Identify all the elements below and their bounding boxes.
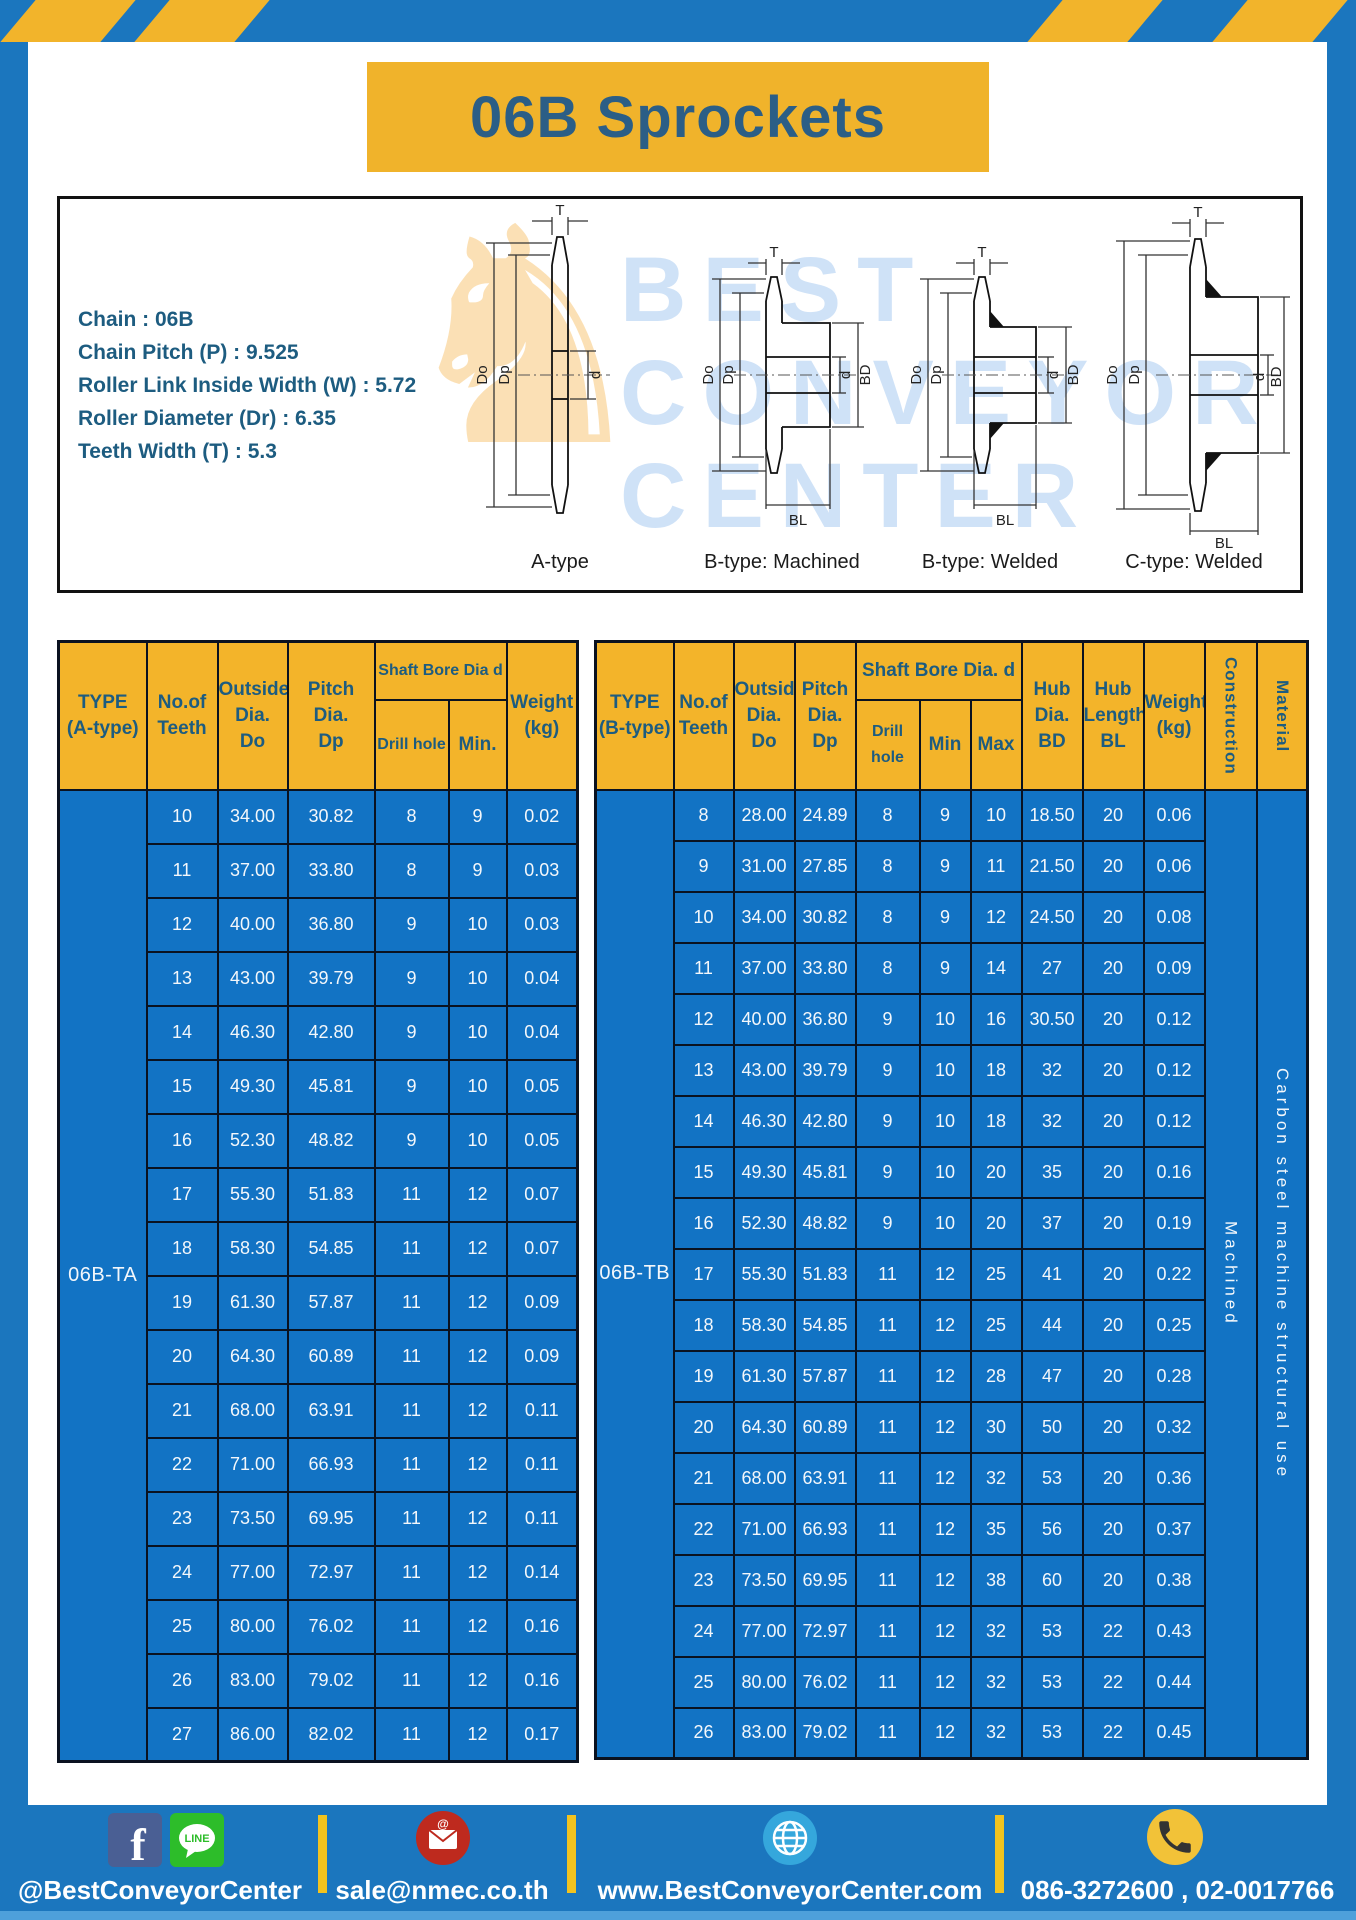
- diagram-panel: ♞ BEST CONVEYOR CENTER Chain : 06B Chain…: [57, 196, 1303, 593]
- table-cell: 20: [1083, 1300, 1144, 1351]
- table-cell: 9: [375, 1060, 449, 1114]
- table-cell: 11: [856, 1657, 920, 1708]
- b-type-machined-diagram: T Do Dp d BD BL: [682, 205, 882, 550]
- table-cell: 0.02: [507, 790, 578, 844]
- table-cell: 30.50: [1022, 994, 1083, 1045]
- table-cell: 52.30: [218, 1114, 288, 1168]
- table-cell: 9: [449, 844, 507, 898]
- table-cell: 10: [920, 1147, 971, 1198]
- table-cell: 46.30: [734, 1096, 795, 1147]
- table-cell: 0.14: [507, 1546, 578, 1600]
- dim-label-do: Do: [474, 365, 491, 384]
- spec-line: Roller Diameter (Dr) : 6.35: [78, 402, 416, 435]
- title-banner: 06B Sprockets: [367, 62, 989, 172]
- table-cell: 10: [449, 1114, 507, 1168]
- table-cell: 9: [856, 1096, 920, 1147]
- table-cell: 11: [856, 1300, 920, 1351]
- a-type-table-header: TYPE (A-type) No.of Teeth Outside Dia. D…: [59, 642, 578, 790]
- table-cell: 76.02: [288, 1600, 375, 1654]
- dim-label-do: Do: [1104, 365, 1121, 384]
- table-cell: 9: [856, 1198, 920, 1249]
- table-cell: 20: [1083, 1402, 1144, 1453]
- table-b-row: 1446.3042.809101832200.12: [596, 1096, 1308, 1147]
- table-cell: 21.50: [1022, 841, 1083, 892]
- table-cell: 0.07: [507, 1168, 578, 1222]
- table-cell: 72.97: [795, 1606, 856, 1657]
- table-cell: 60.89: [288, 1330, 375, 1384]
- table-b-body: 06B-TB828.0024.89891018.50200.06Machined…: [596, 790, 1308, 1759]
- table-cell: 53: [1022, 1657, 1083, 1708]
- header-construction: Construction: [1205, 642, 1257, 790]
- table-cell: 12: [449, 1600, 507, 1654]
- footer-separator: [567, 1815, 576, 1893]
- table-cell: 20: [1083, 1096, 1144, 1147]
- table-cell: 9: [856, 1147, 920, 1198]
- table-cell: 11: [971, 841, 1022, 892]
- table-cell: 9: [920, 892, 971, 943]
- table-b-row: 2580.0076.0211123253220.44: [596, 1657, 1308, 1708]
- header-min: Min: [920, 700, 971, 790]
- table-cell: 36.80: [795, 994, 856, 1045]
- table-cell: 43.00: [218, 952, 288, 1006]
- email-icon[interactable]: @: [415, 1810, 471, 1871]
- table-cell: 18: [147, 1222, 218, 1276]
- table-cell: 8: [856, 892, 920, 943]
- table-cell: 48.82: [795, 1198, 856, 1249]
- table-cell: 32: [971, 1708, 1022, 1759]
- website-text[interactable]: www.BestConveyorCenter.com: [585, 1875, 995, 1906]
- table-cell: 18: [971, 1045, 1022, 1096]
- table-cell: 53: [1022, 1708, 1083, 1759]
- a-type-table: TYPE (A-type) No.of Teeth Outside Dia. D…: [57, 640, 579, 1763]
- table-cell: 32: [971, 1657, 1022, 1708]
- table-cell: 71.00: [218, 1438, 288, 1492]
- table-cell: 33.80: [795, 943, 856, 994]
- table-cell: 57.87: [795, 1351, 856, 1402]
- table-cell: 55.30: [218, 1168, 288, 1222]
- table-cell: 58.30: [218, 1222, 288, 1276]
- header-hub-length: Hub Length BL: [1083, 642, 1144, 790]
- table-cell: 10: [449, 898, 507, 952]
- table-cell: 0.06: [1144, 841, 1205, 892]
- table-cell: 63.91: [288, 1384, 375, 1438]
- stripe-decor: [129, 0, 274, 42]
- footer-bottom-strip: [0, 1911, 1356, 1920]
- table-cell: 48.82: [288, 1114, 375, 1168]
- phone-icon[interactable]: [1146, 1808, 1204, 1871]
- table-cell: 9: [375, 1114, 449, 1168]
- header-type: TYPE (B-type): [596, 642, 674, 790]
- c-type-welded-diagram: T Do Dp d BD BL: [1094, 205, 1294, 550]
- table-cell: 0.28: [1144, 1351, 1205, 1402]
- diagram-caption-b-welded: B-type: Welded: [885, 551, 1095, 574]
- table-cell: 14: [971, 943, 1022, 994]
- header-weight: Weight (kg): [1144, 642, 1205, 790]
- facebook-icon[interactable]: f: [108, 1813, 162, 1872]
- table-cell: 32: [971, 1453, 1022, 1504]
- header-teeth: No.of Teeth: [147, 642, 218, 790]
- table-cell: 0.32: [1144, 1402, 1205, 1453]
- table-cell: 0.16: [507, 1600, 578, 1654]
- header-teeth: No.of Teeth: [674, 642, 734, 790]
- table-b-row: 1652.3048.829102037200.19: [596, 1198, 1308, 1249]
- table-cell: 0.09: [1144, 943, 1205, 994]
- page-title: 06B Sprockets: [470, 84, 886, 151]
- table-cell: 10: [674, 892, 734, 943]
- table-cell: 52.30: [734, 1198, 795, 1249]
- table-cell: 0.37: [1144, 1504, 1205, 1555]
- dim-label-d: d: [837, 371, 854, 379]
- table-cell: 41: [1022, 1249, 1083, 1300]
- b-type-table: TYPE (B-type) No.of Teeth Outside Dia. D…: [594, 640, 1309, 1760]
- table-cell: 71.00: [734, 1504, 795, 1555]
- table-cell: 12: [674, 994, 734, 1045]
- dim-label-d: d: [587, 371, 604, 379]
- table-cell: 20: [1083, 790, 1144, 841]
- table-cell: 10: [920, 1045, 971, 1096]
- table-cell: 19: [674, 1351, 734, 1402]
- table-cell: 24: [674, 1606, 734, 1657]
- dim-label-dp: Dp: [720, 365, 737, 384]
- table-cell: 25: [147, 1600, 218, 1654]
- table-cell: 77.00: [734, 1606, 795, 1657]
- table-cell: 50: [1022, 1402, 1083, 1453]
- table-cell: 0.11: [507, 1384, 578, 1438]
- b-type-table-header: TYPE (B-type) No.of Teeth Outside Dia. D…: [596, 642, 1308, 790]
- table-cell: 22: [1083, 1708, 1144, 1759]
- line-icon[interactable]: LINE: [170, 1813, 224, 1872]
- table-cell: 10: [147, 790, 218, 844]
- table-cell: 11: [375, 1330, 449, 1384]
- table-cell: 21: [674, 1453, 734, 1504]
- header-hub-dia: Hub Dia. BD: [1022, 642, 1083, 790]
- table-cell: 37.00: [218, 844, 288, 898]
- type-label-cell: 06B-TB: [596, 790, 674, 1759]
- dim-label-do: Do: [908, 365, 925, 384]
- table-cell: 10: [971, 790, 1022, 841]
- table-cell: 10: [449, 952, 507, 1006]
- table-cell: 80.00: [218, 1600, 288, 1654]
- table-cell: 23: [674, 1555, 734, 1606]
- table-cell: 11: [375, 1708, 449, 1762]
- spec-line: Chain Pitch (P) : 9.525: [78, 336, 416, 369]
- table-cell: 23: [147, 1492, 218, 1546]
- table-cell: 16: [971, 994, 1022, 1045]
- table-cell: 12: [449, 1168, 507, 1222]
- table-cell: 57.87: [288, 1276, 375, 1330]
- table-cell: 9: [375, 1006, 449, 1060]
- table-cell: 45.81: [288, 1060, 375, 1114]
- table-cell: 12: [449, 1546, 507, 1600]
- spec-line: Roller Link Inside Width (W) : 5.72: [78, 369, 416, 402]
- table-cell: 10: [920, 1198, 971, 1249]
- table-cell: 10: [449, 1006, 507, 1060]
- table-cell: 12: [449, 1222, 507, 1276]
- table-cell: 20: [1083, 1198, 1144, 1249]
- table-cell: 28.00: [734, 790, 795, 841]
- table-cell: 68.00: [218, 1384, 288, 1438]
- diagram-caption-b-machined: B-type: Machined: [677, 551, 887, 574]
- table-cell: 86.00: [218, 1708, 288, 1762]
- table-cell: 9: [920, 943, 971, 994]
- table-cell: 64.30: [218, 1330, 288, 1384]
- table-cell: 40.00: [734, 994, 795, 1045]
- table-cell: 10: [920, 1096, 971, 1147]
- table-cell: 20: [1083, 1045, 1144, 1096]
- table-cell: 49.30: [218, 1060, 288, 1114]
- left-border: [0, 0, 28, 1920]
- table-b-row: 06B-TB828.0024.89891018.50200.06Machined…: [596, 790, 1308, 841]
- table-cell: 0.07: [507, 1222, 578, 1276]
- table-cell: 12: [920, 1351, 971, 1402]
- table-cell: 12: [449, 1384, 507, 1438]
- table-cell: 12: [920, 1504, 971, 1555]
- table-b-row: 2373.5069.9511123860200.38: [596, 1555, 1308, 1606]
- table-cell: 39.79: [795, 1045, 856, 1096]
- header-type: TYPE (A-type): [59, 642, 147, 790]
- table-b-row: 1240.0036.809101630.50200.12: [596, 994, 1308, 1045]
- table-cell: 64.30: [734, 1402, 795, 1453]
- table-cell: 31.00: [734, 841, 795, 892]
- table-cell: 25: [674, 1657, 734, 1708]
- table-cell: 55.30: [734, 1249, 795, 1300]
- table-b-row: 2271.0066.9311123556200.37: [596, 1504, 1308, 1555]
- table-cell: 53: [1022, 1453, 1083, 1504]
- header-max: Max: [971, 700, 1022, 790]
- table-cell: 0.08: [1144, 892, 1205, 943]
- table-cell: 20: [674, 1402, 734, 1453]
- social-handle-text[interactable]: @BestConveyorCenter: [10, 1875, 310, 1906]
- table-cell: 37: [1022, 1198, 1083, 1249]
- table-cell: 20: [1083, 1351, 1144, 1402]
- table-cell: 0.12: [1144, 1096, 1205, 1147]
- spec-line: Chain : 06B: [78, 303, 416, 336]
- table-cell: 42.80: [795, 1096, 856, 1147]
- table-a-row: 06B-TA1034.0030.82890.02: [59, 790, 578, 844]
- table-cell: 16: [147, 1114, 218, 1168]
- table-cell: 13: [674, 1045, 734, 1096]
- table-cell: 15: [147, 1060, 218, 1114]
- header-pitch-dia: Pitch Dia. Dp: [795, 642, 856, 790]
- table-cell: 18.50: [1022, 790, 1083, 841]
- table-cell: 0.17: [507, 1708, 578, 1762]
- table-cell: 66.93: [795, 1504, 856, 1555]
- table-cell: 11: [856, 1708, 920, 1759]
- table-cell: 17: [674, 1249, 734, 1300]
- stripe-decor: [0, 0, 141, 42]
- table-cell: 0.12: [1144, 994, 1205, 1045]
- table-cell: 79.02: [288, 1654, 375, 1708]
- table-b-row: 1343.0039.799101832200.12: [596, 1045, 1308, 1096]
- table-cell: 8: [856, 943, 920, 994]
- table-cell: 44: [1022, 1300, 1083, 1351]
- header-drill-hole: Drill hole: [375, 700, 449, 790]
- table-cell: 20: [1083, 1453, 1144, 1504]
- table-cell: 0.11: [507, 1438, 578, 1492]
- table-cell: 51.83: [288, 1168, 375, 1222]
- table-cell: 11: [856, 1504, 920, 1555]
- dim-label-bl: BL: [1215, 535, 1233, 550]
- table-cell: 68.00: [734, 1453, 795, 1504]
- table-cell: 35: [971, 1504, 1022, 1555]
- table-cell: 11: [375, 1222, 449, 1276]
- table-cell: 12: [920, 1402, 971, 1453]
- table-cell: 11: [674, 943, 734, 994]
- table-cell: 0.04: [507, 952, 578, 1006]
- table-cell: 37.00: [734, 943, 795, 994]
- table-cell: 25: [971, 1300, 1022, 1351]
- table-cell: 14: [147, 1006, 218, 1060]
- b-type-welded-diagram: T Do Dp d BD BL: [890, 205, 1090, 550]
- table-b-row: 1755.3051.8311122541200.22: [596, 1249, 1308, 1300]
- table-cell: 22: [1083, 1606, 1144, 1657]
- dim-label-do: Do: [700, 365, 717, 384]
- table-cell: 35: [1022, 1147, 1083, 1198]
- table-b-row: 1137.0033.80891427200.09: [596, 943, 1308, 994]
- dim-label-bd: BD: [857, 364, 874, 385]
- table-b-row: 1034.0030.82891224.50200.08: [596, 892, 1308, 943]
- table-cell: 24.89: [795, 790, 856, 841]
- table-cell: 69.95: [288, 1492, 375, 1546]
- table-cell: 33.80: [288, 844, 375, 898]
- table-cell: 11: [375, 1492, 449, 1546]
- table-cell: 0.38: [1144, 1555, 1205, 1606]
- table-b-row: 1549.3045.819102035200.16: [596, 1147, 1308, 1198]
- table-cell: 10: [449, 1060, 507, 1114]
- table-cell: 66.93: [288, 1438, 375, 1492]
- table-cell: 0.12: [1144, 1045, 1205, 1096]
- table-cell: 12: [449, 1276, 507, 1330]
- globe-icon[interactable]: [762, 1810, 818, 1871]
- table-cell: 38: [971, 1555, 1022, 1606]
- table-cell: 12: [449, 1708, 507, 1762]
- email-text[interactable]: sale@nmec.co.th: [322, 1875, 562, 1906]
- a-type-diagram: T Do Dp d: [460, 205, 660, 550]
- header-drill-hole: Drill hole: [856, 700, 920, 790]
- table-cell: 8: [856, 790, 920, 841]
- table-cell: 12: [449, 1654, 507, 1708]
- table-cell: 0.45: [1144, 1708, 1205, 1759]
- dim-label-dp: Dp: [496, 365, 513, 384]
- table-cell: 11: [375, 1168, 449, 1222]
- dim-label-dp: Dp: [1126, 365, 1143, 384]
- table-b-row: 1858.3054.8511122544200.25: [596, 1300, 1308, 1351]
- table-cell: 12: [920, 1657, 971, 1708]
- table-cell: 0.36: [1144, 1453, 1205, 1504]
- table-cell: 40.00: [218, 898, 288, 952]
- table-cell: 22: [674, 1504, 734, 1555]
- phone-text[interactable]: 086-3272600 , 02-0017766: [1005, 1875, 1350, 1906]
- table-cell: 0.43: [1144, 1606, 1205, 1657]
- table-cell: 12: [971, 892, 1022, 943]
- page: 06B Sprockets ♞ BEST CONVEYOR CENTER Cha…: [0, 0, 1356, 1920]
- table-cell: 26: [147, 1654, 218, 1708]
- construction-value-cell: Machined: [1205, 790, 1257, 1759]
- table-cell: 9: [375, 898, 449, 952]
- type-label-cell: 06B-TA: [59, 790, 147, 1762]
- right-border: [1327, 0, 1356, 1920]
- table-cell: 61.30: [218, 1276, 288, 1330]
- chain-specs: Chain : 06B Chain Pitch (P) : 9.525 Roll…: [78, 303, 416, 468]
- header-outside-dia: Outside Dia. Do: [218, 642, 288, 790]
- table-cell: 22: [1083, 1657, 1144, 1708]
- table-cell: 76.02: [795, 1657, 856, 1708]
- header-outside-dia: Outside Dia. Do: [734, 642, 795, 790]
- header-shaft-bore: Shaft Bore Dia. d: [856, 642, 1022, 700]
- table-cell: 17: [147, 1168, 218, 1222]
- table-cell: 12: [920, 1249, 971, 1300]
- table-cell: 11: [147, 844, 218, 898]
- table-cell: 36.80: [288, 898, 375, 952]
- table-cell: 79.02: [795, 1708, 856, 1759]
- diagram-caption-c-welded: C-type: Welded: [1089, 551, 1299, 574]
- footer-separator: [995, 1815, 1004, 1893]
- table-cell: 30.82: [288, 790, 375, 844]
- table-cell: 9: [674, 841, 734, 892]
- table-cell: 0.03: [507, 898, 578, 952]
- table-cell: 8: [375, 790, 449, 844]
- table-cell: 0.44: [1144, 1657, 1205, 1708]
- table-cell: 32: [1022, 1045, 1083, 1096]
- table-cell: 69.95: [795, 1555, 856, 1606]
- table-cell: 73.50: [734, 1555, 795, 1606]
- table-a-body: 06B-TA1034.0030.82890.021137.0033.80890.…: [59, 790, 578, 1762]
- table-cell: 32: [971, 1606, 1022, 1657]
- table-b-row: 2064.3060.8911123050200.32: [596, 1402, 1308, 1453]
- table-cell: 54.85: [795, 1300, 856, 1351]
- table-cell: 9: [920, 841, 971, 892]
- table-cell: 32: [1022, 1096, 1083, 1147]
- table-cell: 30: [971, 1402, 1022, 1453]
- table-cell: 20: [971, 1198, 1022, 1249]
- table-cell: 0.05: [507, 1060, 578, 1114]
- table-cell: 0.25: [1144, 1300, 1205, 1351]
- svg-text:@: @: [437, 1817, 449, 1831]
- table-cell: 24.50: [1022, 892, 1083, 943]
- table-cell: 20: [1083, 1555, 1144, 1606]
- table-cell: 0.05: [507, 1114, 578, 1168]
- table-cell: 8: [856, 841, 920, 892]
- table-cell: 73.50: [218, 1492, 288, 1546]
- table-cell: 22: [147, 1438, 218, 1492]
- svg-text:f: f: [130, 1819, 146, 1867]
- table-cell: 12: [920, 1453, 971, 1504]
- table-cell: 24: [147, 1546, 218, 1600]
- header-weight: Weight (kg): [507, 642, 578, 790]
- table-cell: 34.00: [218, 790, 288, 844]
- table-cell: 47: [1022, 1351, 1083, 1402]
- table-cell: 0.16: [507, 1654, 578, 1708]
- table-cell: 63.91: [795, 1453, 856, 1504]
- table-cell: 14: [674, 1096, 734, 1147]
- table-cell: 11: [375, 1654, 449, 1708]
- table-cell: 46.30: [218, 1006, 288, 1060]
- table-cell: 20: [147, 1330, 218, 1384]
- drawing: [486, 217, 610, 513]
- dim-label-dp: Dp: [928, 365, 945, 384]
- table-cell: 9: [449, 790, 507, 844]
- table-b-row: 2168.0063.9111123253200.36: [596, 1453, 1308, 1504]
- dim-label-bd: BD: [1065, 364, 1082, 385]
- table-cell: 21: [147, 1384, 218, 1438]
- table-cell: 30.82: [795, 892, 856, 943]
- table-cell: 42.80: [288, 1006, 375, 1060]
- table-cell: 15: [674, 1147, 734, 1198]
- table-cell: 12: [449, 1492, 507, 1546]
- table-cell: 12: [920, 1555, 971, 1606]
- table-cell: 11: [856, 1402, 920, 1453]
- material-value-cell: Carbon steel machine structural use: [1257, 790, 1308, 1759]
